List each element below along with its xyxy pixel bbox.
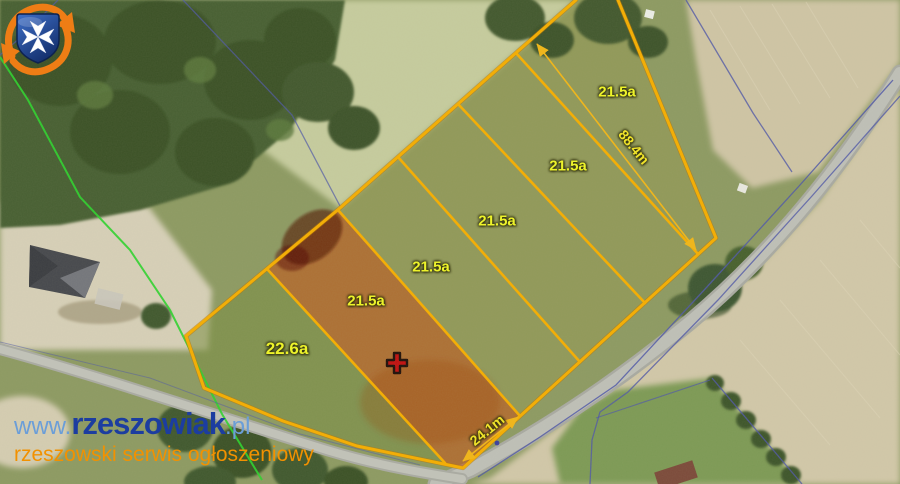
watermark-name: rzeszowiak bbox=[71, 408, 225, 439]
watermark-prefix: www. bbox=[14, 415, 71, 439]
aerial-parcel-map: 21.5a 21.5a 21.5a 21.5a 21.5a 22.6a 88.4… bbox=[0, 0, 900, 484]
parcel-area-label: 21.5a bbox=[347, 293, 385, 310]
watermark-tagline: rzeszowski serwis ogłoszeniowy bbox=[14, 444, 314, 465]
parcel-area-label: 21.5a bbox=[412, 259, 450, 276]
rzeszowiak-logo bbox=[0, 0, 76, 76]
parcel-area-label: 21.5a bbox=[549, 158, 587, 175]
watermark-site: www.rzeszowiak.pl bbox=[14, 408, 314, 439]
parcel-area-label: 22.6a bbox=[266, 339, 309, 359]
watermark-tld: .pl bbox=[225, 415, 250, 439]
parcel-area-label: 21.5a bbox=[598, 84, 636, 101]
watermark: www.rzeszowiak.pl rzeszowski serwis ogło… bbox=[14, 408, 314, 465]
parcel-area-label: 21.5a bbox=[478, 213, 516, 230]
